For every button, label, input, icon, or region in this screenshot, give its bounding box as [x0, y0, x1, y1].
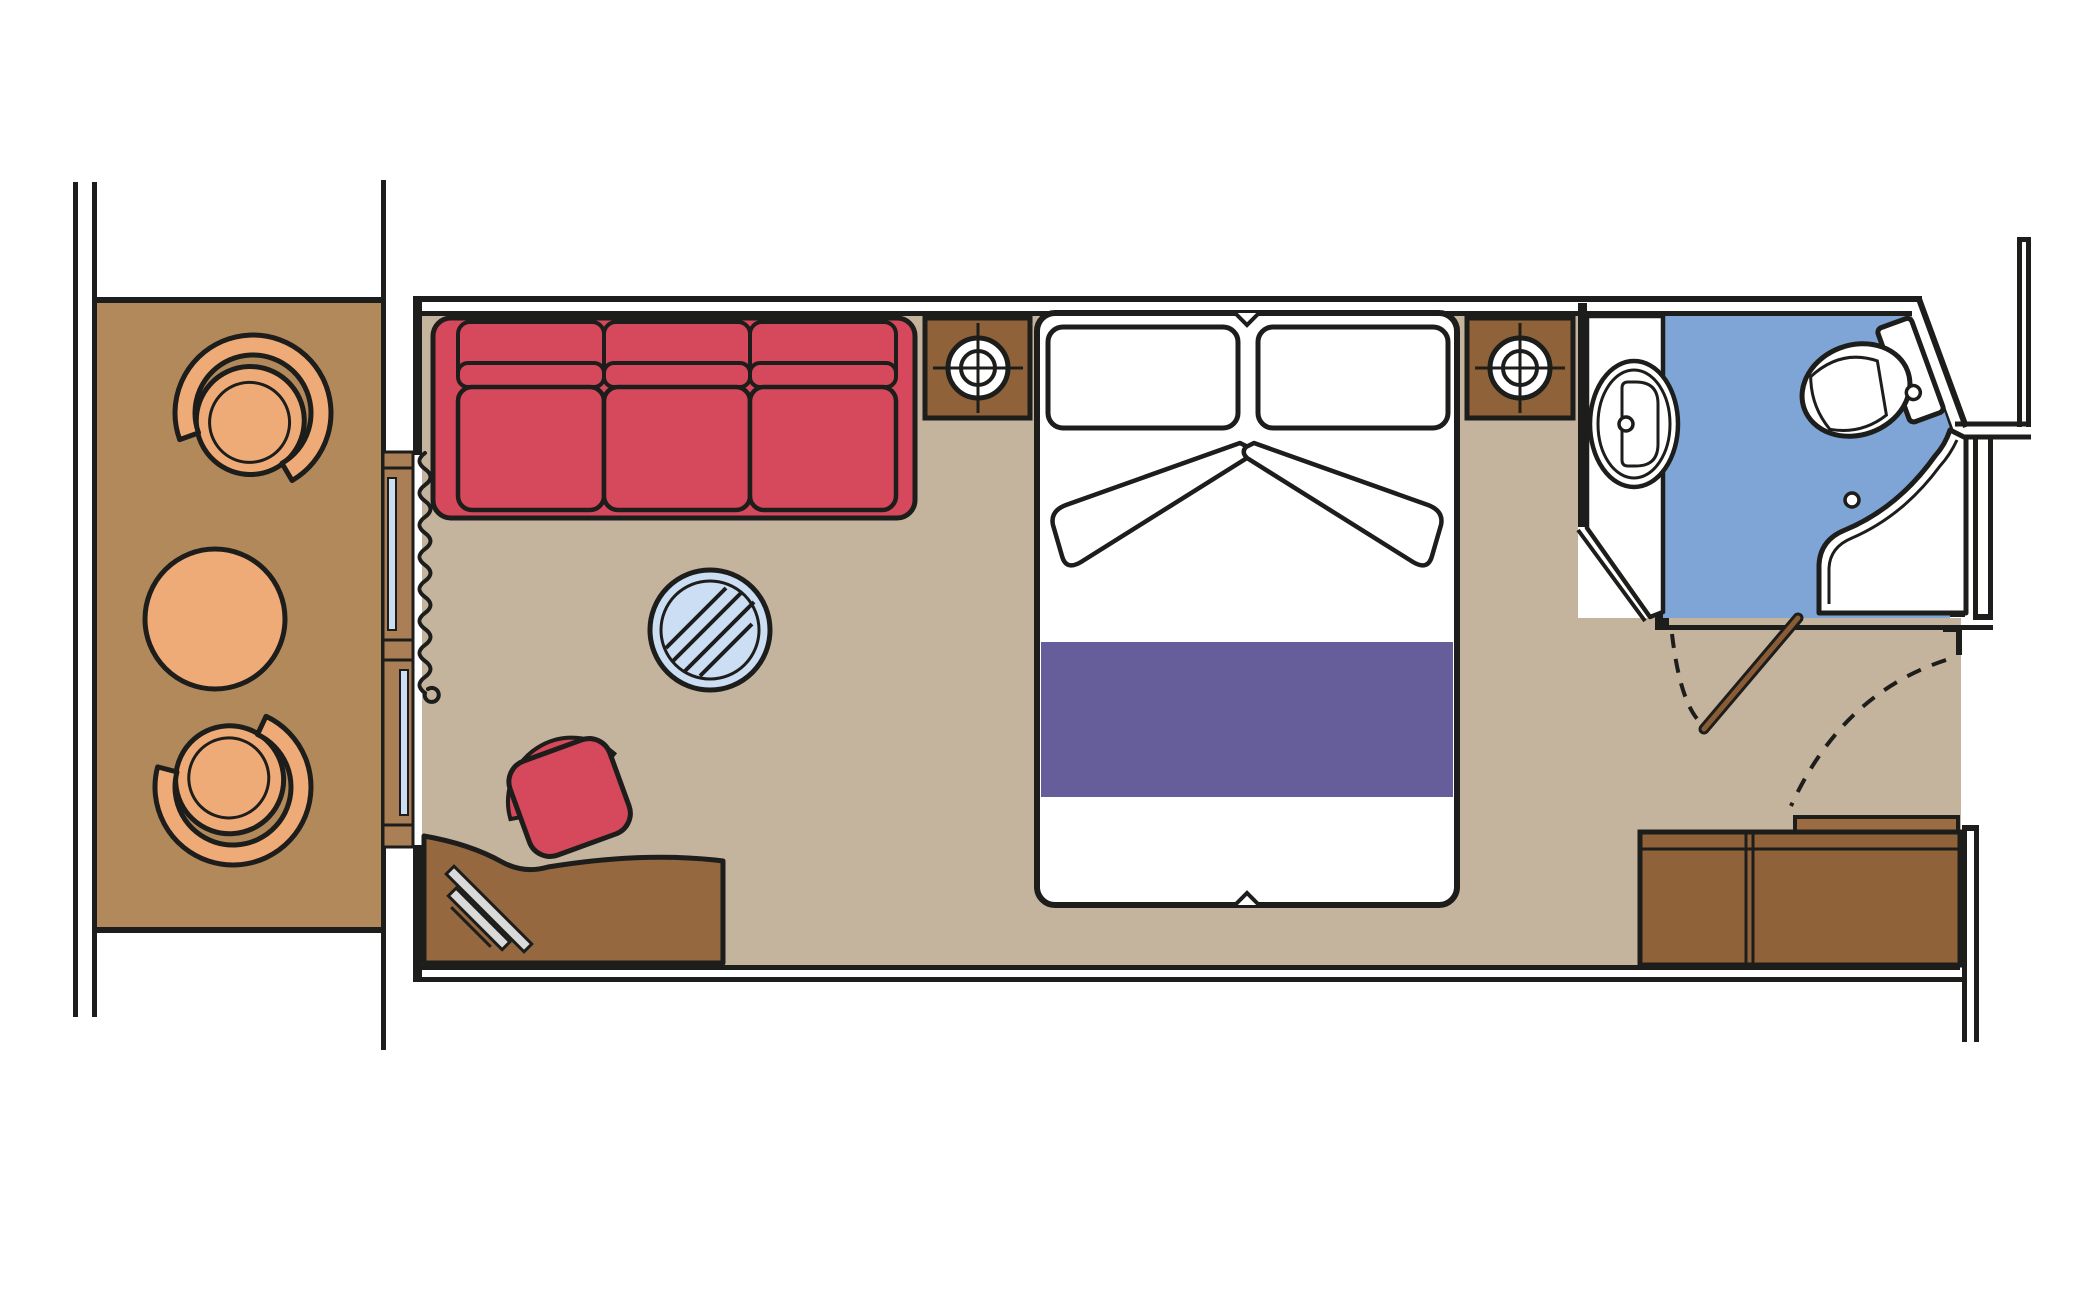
bedspread: [1041, 642, 1453, 797]
shower-handle: [1845, 493, 1859, 507]
sliding-door-glass-lower: [400, 670, 408, 815]
entry-jamb-side: [1956, 627, 1962, 655]
ship-hull-line-outer: [73, 182, 78, 1017]
floor-plan: [0, 0, 2100, 1299]
balcony-top-edge: [92, 297, 386, 303]
sofa-back-roll: [604, 363, 750, 387]
entry-wall-b: [1988, 438, 1993, 620]
pillow-right: [1258, 327, 1448, 428]
nightstand-right: [1467, 318, 1573, 418]
coffee-table: [650, 570, 770, 690]
sofa-seat-cushion: [604, 387, 750, 510]
bed: [1037, 313, 1457, 905]
sliding-door-end: [383, 825, 413, 847]
sofa-seat-cushion: [750, 387, 896, 510]
wardrobe: [1640, 817, 1960, 965]
balcony-bottom-edge: [92, 927, 386, 933]
sofa-back-roll: [750, 363, 896, 387]
corridor-wall-a: [1962, 828, 1967, 1042]
bathroom-bottom-outer: [1657, 625, 1993, 630]
sliding-door-glass-upper: [388, 478, 396, 630]
floor-plan-canvas: [0, 0, 2100, 1299]
ship-hull-line-inner: [92, 182, 97, 1017]
sink: [1590, 361, 1678, 487]
pillow-left: [1048, 327, 1238, 428]
top-wall-outer: [413, 296, 1922, 302]
corridor-wall-b: [1974, 828, 1979, 1042]
sofa-back-roll: [458, 363, 604, 387]
sliding-door-track: [383, 452, 413, 468]
nightstand-left: [925, 318, 1030, 418]
balcony-table: [145, 549, 285, 689]
sofa-seat-cushion: [458, 387, 604, 510]
entry-wall-a: [1973, 438, 1978, 620]
cabin-left-wall-lower: [413, 845, 422, 982]
right-wall-upper-b: [2026, 237, 2031, 427]
balcony: [73, 180, 386, 1050]
right-wall-cap: [2017, 237, 2031, 242]
cabin-left-wall-upper: [413, 298, 422, 455]
sliding-door-joint: [383, 640, 413, 660]
cabinet-body: [1640, 832, 1960, 965]
sofa: [433, 318, 915, 518]
entry-wall-foot: [1973, 614, 1993, 620]
bottom-wall-outer: [413, 977, 1966, 982]
right-wall-upper-a: [2017, 237, 2022, 427]
